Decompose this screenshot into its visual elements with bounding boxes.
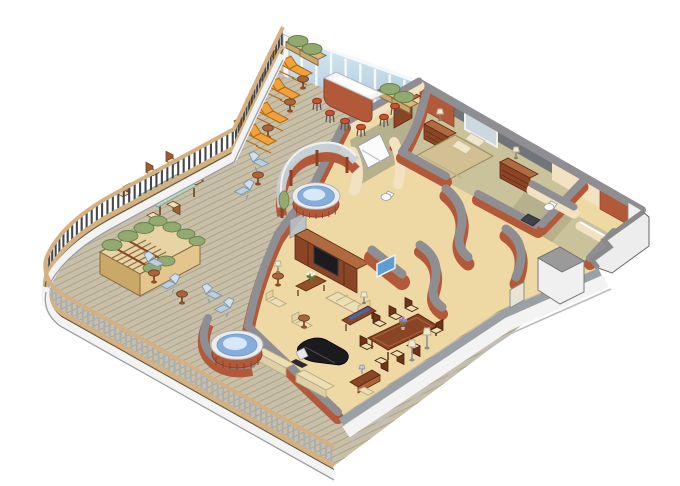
floorplan-stage [0, 0, 680, 486]
whirlpool [292, 183, 340, 219]
suite-floorplan-svg [0, 0, 680, 486]
whirlpool [211, 331, 263, 371]
plant [279, 191, 289, 209]
